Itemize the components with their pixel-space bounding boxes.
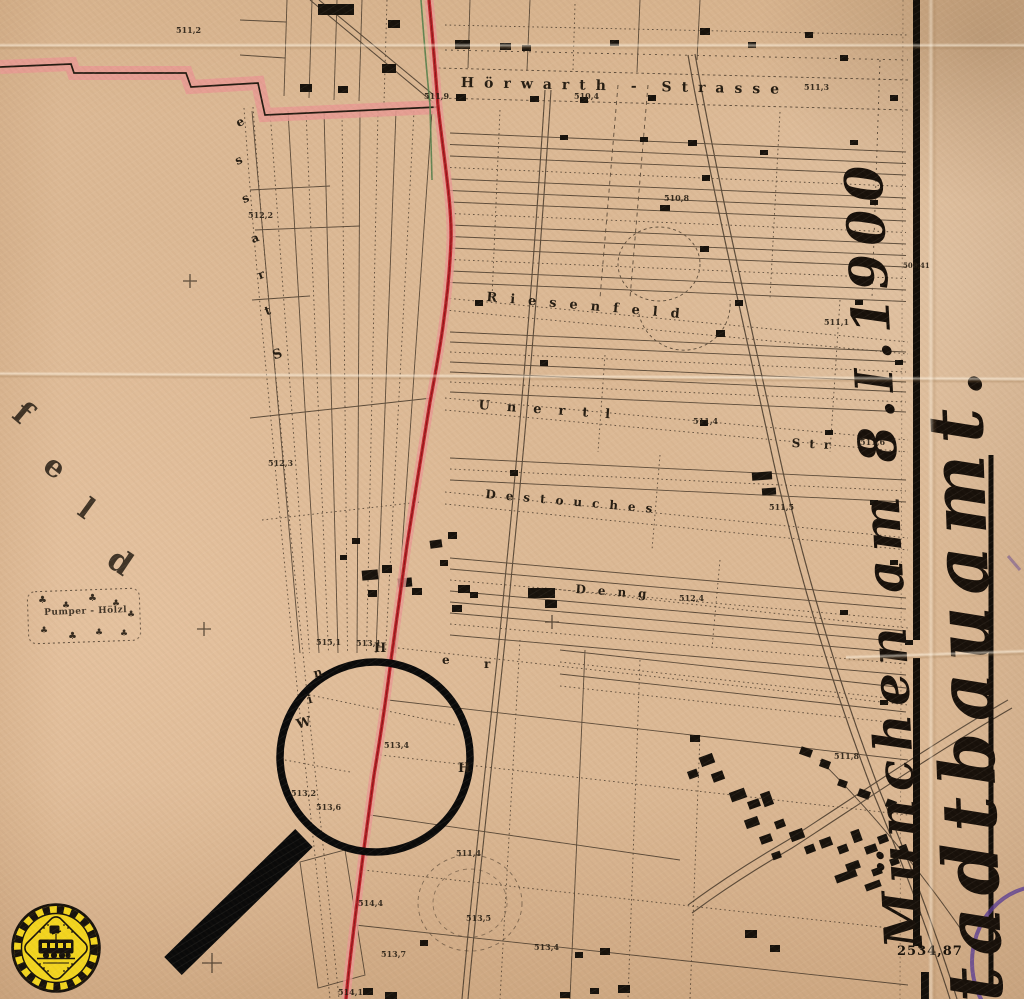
magnifier-handle [173,838,304,966]
sheet-number: 2534,87 [897,944,963,959]
tram-museum-badge [10,902,102,994]
magnifier-annotation [173,662,470,966]
district-boundary-band [0,64,438,115]
historic-map-scan: Hörwarth - StrasseRiesenfeldUnertlDestou… [0,0,1024,999]
